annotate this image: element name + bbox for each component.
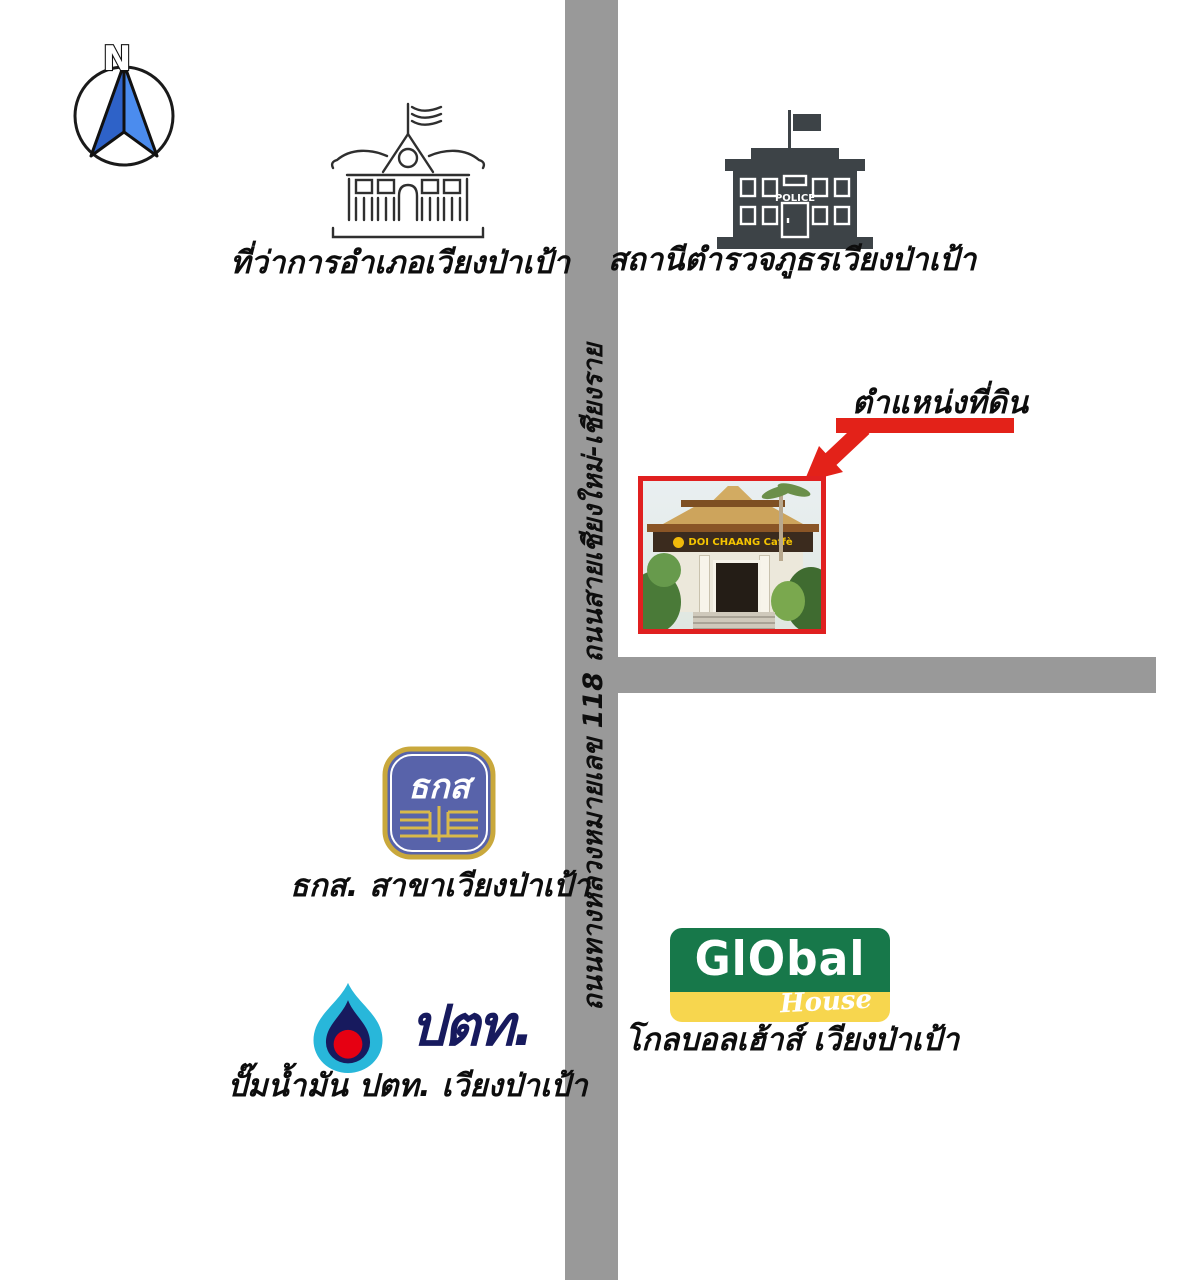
global-house-label: โกลบอลเฮ้าส์ เวียงป่าเป้า bbox=[618, 1020, 966, 1062]
police-sign-text: POLICE bbox=[775, 193, 815, 204]
photo-roof-ridge bbox=[681, 500, 785, 507]
baac-emblem-text: ธกส bbox=[408, 767, 475, 807]
red-pointer-arrow bbox=[798, 410, 1023, 485]
photo-pillar-left bbox=[699, 555, 710, 614]
ptt-logo: ปตท. bbox=[300, 981, 532, 1073]
ptt-logo-text: ปตท. bbox=[410, 999, 532, 1055]
global-house-logo-top: GlObal bbox=[670, 928, 890, 992]
district-office-label: ที่ว่าการอำเภอเวียงป่าเป้า bbox=[220, 243, 580, 285]
photo-bush-right-light bbox=[771, 581, 805, 621]
global-house-logo: GlObal House bbox=[670, 928, 890, 1022]
police-station-label: สถานีตำรวจภูธรเวียงป่าเป้า bbox=[608, 240, 973, 282]
global-house-logo-bottom: House bbox=[670, 992, 890, 1022]
highway-118-road-label: ถนนทางหลวงหมายเลข 118 ถนนสายเชียงใหม่-เช… bbox=[577, 277, 611, 1077]
ptt-station-label: ปั๊มน้ำมัน ปตท. เวียงป่าเป้า bbox=[225, 1066, 590, 1108]
photo-roof-eave bbox=[647, 524, 819, 532]
district-office-building-icon bbox=[323, 98, 493, 243]
shop-sign-text: DOI CHAANG Caffè bbox=[688, 537, 792, 548]
baac-branch-label: ธกส. สาขาเวียงป่าเป้า bbox=[260, 866, 620, 908]
photo-entrance-steps bbox=[693, 612, 775, 629]
compass-n-letter: N bbox=[103, 42, 131, 79]
global-house-wordmark: GlObal bbox=[695, 936, 866, 984]
north-compass-icon: N bbox=[68, 42, 180, 172]
location-sketch-map: ถนนทางหลวงหมายเลข 118 ถนนสายเชียงใหม่-เช… bbox=[0, 0, 1181, 1280]
land-plot-photo: DOI CHAANG Caffè bbox=[638, 476, 826, 634]
ptt-flame-icon bbox=[300, 981, 396, 1073]
coffee-logo-icon bbox=[673, 537, 684, 548]
photo-bush-left-light bbox=[647, 553, 681, 587]
photo-shop-sign: DOI CHAANG Caffè bbox=[653, 532, 813, 552]
baac-bank-logo: ธกส bbox=[382, 746, 496, 860]
police-station-building-icon: POLICE bbox=[705, 102, 875, 254]
global-house-script: House bbox=[779, 987, 872, 1018]
side-road-horizontal bbox=[600, 657, 1156, 693]
photo-entrance-door bbox=[713, 560, 761, 618]
photo-palm-trunk bbox=[779, 491, 783, 561]
photo-roof-top bbox=[701, 486, 765, 501]
